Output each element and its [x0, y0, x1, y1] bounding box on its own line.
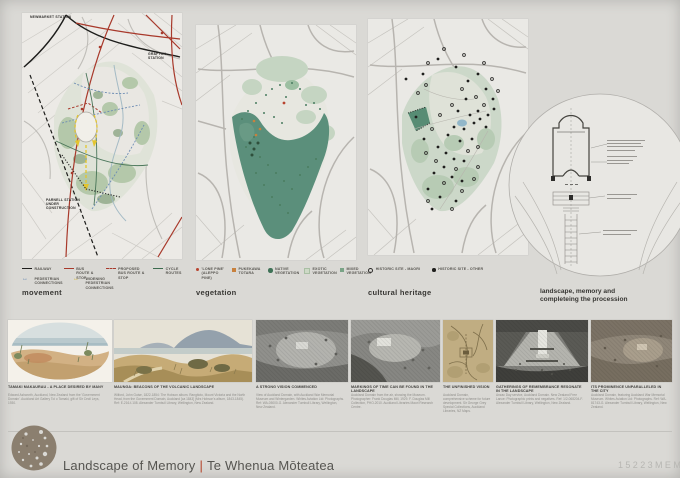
caption-text: Anzac Day service, Auckland Domain. New …: [496, 393, 584, 405]
watercolor-dunes-image: [114, 320, 252, 382]
legend-item: NATIVE VEGETATION: [268, 267, 298, 276]
legend-label: NATIVE VEGETATION: [275, 267, 299, 276]
caption-title: MAUNGA: BEACONS OF THE VOLCANIC LANDSCAP…: [114, 385, 248, 389]
caption-title: TAMAKI MAKAURAU - A PLACE DESIRED BY MAN…: [8, 385, 108, 389]
map-movement-drawing: [22, 13, 182, 259]
legend-label: HISTORIC SITE - MAORI: [376, 267, 420, 271]
board-title-maori: Te Whenua Mōteatea: [207, 458, 334, 473]
green-line-icon: [153, 268, 163, 269]
legend-label: WIDENING PEDESTRIAN CONNECTIONS: [86, 277, 122, 290]
legend-label: 'LONE PINE' (ALEPPO PINE): [202, 267, 227, 280]
photo-tamaki-makaurau: [8, 320, 112, 382]
caption-title: THE UNFINISHED VISION: [443, 385, 491, 389]
board-title-separator: |: [195, 458, 207, 473]
map-vegetation: [196, 25, 356, 260]
dark-green-dot-icon: [268, 268, 273, 273]
caption-text: Auckland Domain, comprehensive scheme fo…: [443, 393, 491, 413]
photo-prominence-city: [591, 320, 672, 382]
map-title-movement: movement: [22, 288, 62, 297]
cenotaph-crowd-image: [496, 320, 588, 382]
legend-item: PEDESTRIAN CONNECTIONS: [22, 277, 64, 286]
presentation-board: NEWMARKET STATION GRAFTON STATION PARNEL…: [0, 0, 680, 478]
photo-maunga: [114, 320, 252, 382]
map-vegetation-drawing: [196, 25, 356, 260]
legend-item: EXOTIC VEGETATION: [304, 267, 334, 276]
sepia-aerial-image: [591, 320, 672, 382]
label-parnell-station: PARNELL STATION UNDER CONSTRUCTION: [46, 199, 86, 211]
legend-cultural-heritage: HISTORIC SITE - MAORI HISTORIC SITE - OT…: [368, 267, 483, 273]
black-line-icon: [22, 268, 32, 269]
legend-label: EXOTIC VEGETATION: [313, 267, 337, 276]
open-circle-icon: [368, 268, 373, 273]
aerial-domain-image: [351, 320, 440, 382]
map-cultural-heritage: [368, 19, 528, 255]
aerial-photo-image: [256, 320, 348, 382]
board-title-main: Landscape of Memory: [63, 458, 195, 473]
legend-item: HISTORIC SITE - MAORI: [368, 267, 420, 273]
board-title: Landscape of Memory|Te Whenua Mōteatea: [63, 458, 334, 473]
orange-square-icon: [232, 268, 236, 272]
caption-text: Wilford, John Guise, 1822-1854: The Hobs…: [114, 393, 248, 405]
watercolor-oval-image: [8, 320, 112, 382]
moon-logo: [11, 424, 59, 472]
legend-item: RAILWAY: [22, 267, 57, 271]
label-newmarket-station: NEWMARKET STATION: [30, 16, 71, 20]
caption-text: Auckland Domain from the air, showing th…: [351, 393, 437, 409]
photo-vision-commenced: [256, 320, 348, 382]
map-title-cultural-heritage: cultural heritage: [368, 288, 431, 297]
caption-text: Edward Ashworth, Auckland, New Zealand f…: [8, 393, 108, 405]
photo-unfinished-vision: [443, 320, 493, 382]
board-code: 15223MEM: [618, 460, 680, 470]
legend-item: WIDENING PEDESTRIAN CONNECTIONS: [73, 277, 121, 290]
red-line-icon: [64, 268, 74, 269]
light-green-square-icon: [304, 268, 310, 274]
legend-label: PROPOSED BUS ROUTE & STOP: [118, 267, 146, 280]
procession-diagram-drawing: [507, 92, 680, 278]
yellow-arrows-icon: [73, 277, 83, 282]
photo-markings-of-time: [351, 320, 440, 382]
blue-arrows-icon: [22, 277, 32, 282]
caption-text: View of Auckland Domain, with Auckland W…: [256, 393, 344, 409]
mid-green-square-icon: [340, 268, 344, 272]
legend-vegetation: 'LONE PINE' (ALEPPO PINE) PUKEKAWA TOTAR…: [196, 267, 370, 280]
legend-item: CYCLE ROUTES: [153, 267, 186, 276]
procession-diagram: [507, 92, 680, 278]
legend-label: RAILWAY: [35, 267, 52, 271]
legend-label: PUKEKAWA TOTARA: [239, 267, 263, 276]
caption-text: Auckland Domain, featuring Auckland War …: [591, 393, 669, 409]
moon-logo-icon: [11, 424, 59, 472]
legend-item: 'LONE PINE' (ALEPPO PINE): [196, 267, 226, 280]
legend-item: HISTORIC SITE - OTHER: [432, 267, 483, 272]
footer-divider: [8, 431, 672, 432]
diagram-title: landscape, memory and completeing the pr…: [540, 288, 652, 304]
filled-circle-icon: [432, 268, 436, 272]
map-title-vegetation: vegetation: [196, 288, 237, 297]
legend-label: HISTORIC SITE - OTHER: [438, 267, 483, 271]
map-movement: NEWMARKET STATION GRAFTON STATION PARNEL…: [22, 13, 182, 259]
caption-title: A STRONG VISION COMMENCED: [256, 385, 344, 389]
plan-drawing-image: [443, 320, 493, 382]
legend-label: CYCLE ROUTES: [166, 267, 186, 276]
map-cultural-heritage-drawing: [368, 19, 528, 255]
photo-remembrance-gathering: [496, 320, 588, 382]
legend-item: PUKEKAWA TOTARA: [232, 267, 262, 276]
label-grafton-station: GRAFTON STATION: [148, 53, 176, 61]
legend-item: MIXED VEGETATION: [340, 267, 370, 276]
red-dot-icon: [196, 268, 199, 271]
red-dashed-line-icon: [106, 268, 116, 269]
legend-label: PEDESTRIAN CONNECTIONS: [35, 277, 65, 286]
